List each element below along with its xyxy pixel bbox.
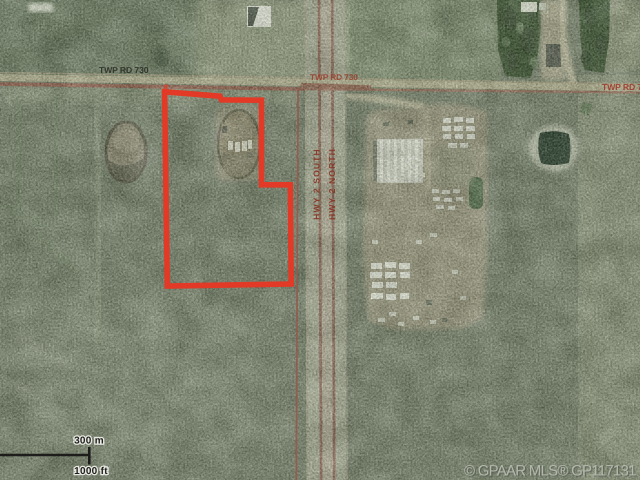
svg-text:1000 ft: 1000 ft <box>74 466 108 477</box>
svg-text:300 m: 300 m <box>74 436 104 447</box>
svg-text:TWP RD 730: TWP RD 730 <box>602 82 640 92</box>
svg-text:HWY 2 SOUTH: HWY 2 SOUTH <box>312 148 322 220</box>
svg-text:© GPAAR MLS® GP117131: © GPAAR MLS® GP117131 <box>464 462 636 479</box>
svg-text:TWP RD 730: TWP RD 730 <box>99 65 149 75</box>
svg-text:HWY 2 NORTH: HWY 2 NORTH <box>327 148 337 220</box>
svg-text:TWP RD 730: TWP RD 730 <box>310 72 358 82</box>
